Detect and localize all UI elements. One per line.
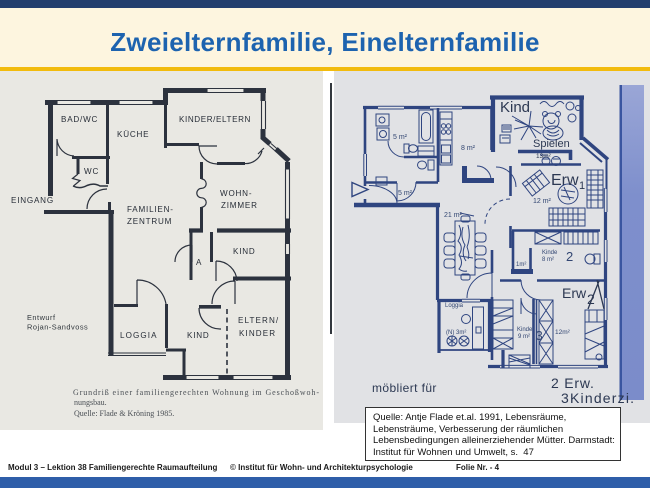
svg-text:Loggia: Loggia bbox=[445, 303, 464, 309]
svg-text:8 m²: 8 m² bbox=[542, 257, 554, 263]
svg-text:Kind: Kind bbox=[500, 99, 530, 116]
svg-text:2 Erw.: 2 Erw. bbox=[551, 375, 595, 391]
svg-text:Entwurf: Entwurf bbox=[27, 313, 56, 322]
svg-text:Erw: Erw bbox=[562, 285, 587, 301]
svg-text:Spielen: Spielen bbox=[533, 138, 570, 150]
svg-text:KÜCHE: KÜCHE bbox=[117, 130, 149, 139]
svg-text:FAMILIEN-: FAMILIEN- bbox=[127, 205, 174, 214]
svg-text:LOGGIA: LOGGIA bbox=[120, 331, 158, 340]
svg-text:13m²: 13m² bbox=[536, 153, 552, 160]
svg-text:KIND: KIND bbox=[233, 247, 256, 256]
svg-text:KINDER/ELTERN: KINDER/ELTERN bbox=[179, 115, 251, 124]
svg-text:ZENTRUM: ZENTRUM bbox=[127, 217, 172, 226]
svg-text:Kinde: Kinde bbox=[542, 250, 558, 256]
svg-text:12m²: 12m² bbox=[555, 329, 571, 336]
svg-text:5 m²: 5 m² bbox=[398, 190, 413, 197]
svg-text:8 m²: 8 m² bbox=[461, 145, 476, 152]
svg-text:1: 1 bbox=[579, 180, 585, 192]
svg-text:21 m²: 21 m² bbox=[444, 212, 463, 219]
svg-text:KIND: KIND bbox=[187, 331, 210, 340]
svg-text:Quelle: Flade & Kröning 1985.: Quelle: Flade & Kröning 1985. bbox=[74, 409, 174, 418]
svg-text:nungsbau.: nungsbau. bbox=[74, 398, 107, 407]
svg-text:9 m²: 9 m² bbox=[518, 334, 530, 340]
svg-text:BAD/WC: BAD/WC bbox=[61, 115, 98, 124]
svg-text:ELTERN/: ELTERN/ bbox=[238, 316, 279, 325]
svg-text:2: 2 bbox=[566, 249, 573, 264]
svg-text:KINDER: KINDER bbox=[239, 329, 276, 338]
svg-text:(N) 3m²: (N) 3m² bbox=[446, 330, 466, 336]
svg-text:3: 3 bbox=[536, 328, 543, 343]
svg-text:möbliert für: möbliert für bbox=[372, 381, 437, 395]
svg-text:WOHN-: WOHN- bbox=[220, 189, 252, 198]
svg-text:A: A bbox=[196, 258, 202, 267]
svg-text:Kinde: Kinde bbox=[517, 327, 533, 333]
svg-text:1m²: 1m² bbox=[516, 262, 526, 268]
svg-text:WC: WC bbox=[84, 167, 99, 176]
svg-text:5 m²: 5 m² bbox=[393, 134, 408, 141]
svg-text:3Kinderzi.: 3Kinderzi. bbox=[561, 390, 635, 406]
svg-text:Erw: Erw bbox=[551, 172, 579, 189]
svg-text:EINGANG: EINGANG bbox=[11, 196, 54, 205]
svg-text:Grundriß einer familiengerecht: Grundriß einer familiengerechten Wohnung… bbox=[73, 388, 319, 397]
svg-text:ZIMMER: ZIMMER bbox=[221, 201, 258, 210]
svg-text:12 m²: 12 m² bbox=[533, 198, 552, 205]
svg-text:Rojan-Sandvoss: Rojan-Sandvoss bbox=[27, 323, 88, 332]
